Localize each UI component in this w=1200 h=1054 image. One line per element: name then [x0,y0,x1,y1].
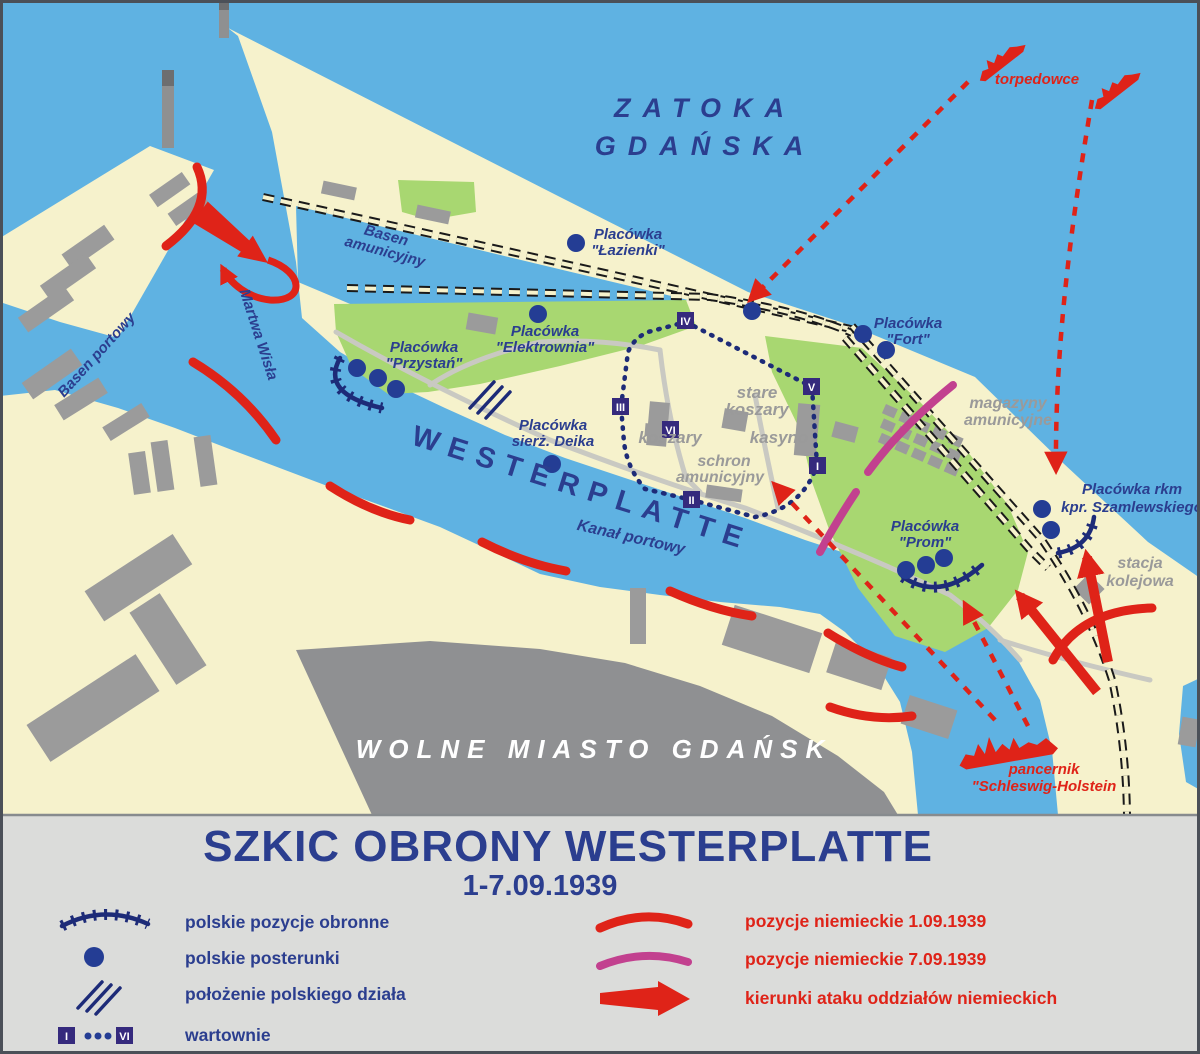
outpost-elektrownia-line2: "Elektrownia" [496,339,595,356]
label-stare-koszary-line2: koszary [725,400,790,419]
guardhouse-iv: IV [680,316,691,328]
legend-label-polish-posts: polskie posterunki [185,948,340,968]
legend-subtitle: 1-7.09.1939 [463,870,618,902]
label-koszary: koszary [638,428,703,447]
outpost-lazienki-line1: Placówka [594,226,662,243]
guardhouse-iii: III [616,402,625,414]
outpost-lazienki-line2: "Łazienki" [591,242,665,259]
map-area: IV V I II III VI ZATOKA GDAŃSKA Basen am… [0,0,1200,815]
legend-label-attack-directions: kierunki ataku oddziałów niemieckich [745,988,1057,1008]
east-mole-pier [219,10,229,38]
legend-label-polish-gun: położenie polskiego działa [185,984,406,1004]
westerplatte-defense-map: IV V I II III VI ZATOKA GDAŃSKA Basen am… [0,0,1200,1054]
label-schron-line1: schron [697,453,751,470]
legend-badge-last: VI [119,1031,129,1043]
guardhouse-i: I [816,461,819,473]
legend-title: SZKIC OBRONY WESTERPLATTE [203,822,933,871]
label-schron-line2: amunicyjny [676,469,765,486]
label-stacja-line2: kolejowa [1106,573,1174,590]
outpost-prom-line2: "Prom" [899,534,952,551]
outpost-fort-line2: "Fort" [886,331,930,348]
legend-badge-first: I [65,1031,68,1043]
label-magazyny-line1: magazyny [969,395,1047,412]
label-pancernik-line2: "Schleswig-Holstein [972,778,1117,795]
west-mole-tip [162,70,174,88]
legend-label-german-1-09: pozycje niemieckie 1.09.1939 [745,911,987,931]
west-mole-pier [162,86,174,148]
legend-panel: SZKIC OBRONY WESTERPLATTE 1-7.09.1939 I … [0,815,1200,1054]
outpost-fort-line1: Placówka [874,315,942,332]
outpost-elektrownia-line1: Placówka [511,323,579,340]
outpost-przystan-line1: Placówka [390,339,458,356]
legend-label-german-7-09: pozycje niemieckie 7.09.1939 [745,949,987,969]
label-magazyny-line2: amunicyjne [964,412,1052,429]
polish-post-dot-icon [84,947,104,967]
guardhouse-v: V [808,382,816,394]
legend-label-polish-positions: polskie pozycje obronne [185,912,389,932]
outpost-deika-line1: Placówka [519,417,587,434]
label-kasyno: kasyno [750,428,809,447]
label-wolne-miasto-gdansk: WOLNE MIASTO GDAŃSK [356,734,833,764]
outpost-szamlewski-line2: kpr. Szamlewskiego [1061,499,1200,516]
outpost-przystan-line2: "Przystań" [386,355,464,372]
bay-name-line1: ZATOKA [613,93,796,123]
legend-label-guardhouses: wartownie [184,1025,271,1045]
outpost-szamlewski-line1: Placówka rkm [1082,481,1182,498]
label-stacja-line1: stacja [1117,555,1162,572]
outpost-prom-line1: Placówka [891,518,959,535]
outpost-deika-line2: sierż. Deika [512,433,595,450]
label-pancernik-line1: pancernik [1008,761,1081,778]
bay-name-line2: GDAŃSKA [595,130,816,161]
label-torpedowce: torpedowce [995,71,1079,88]
